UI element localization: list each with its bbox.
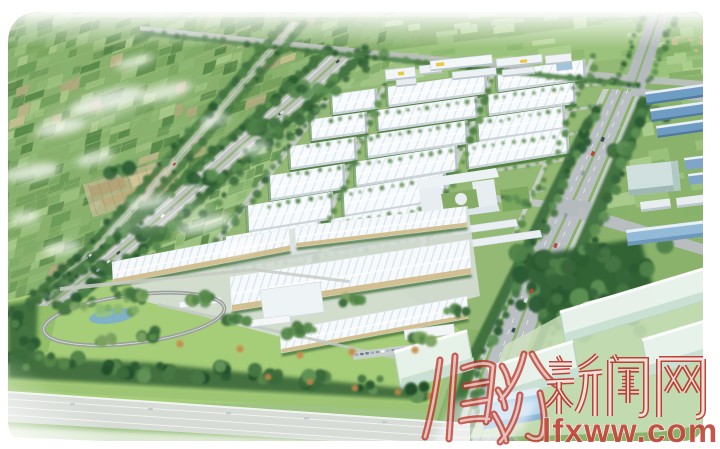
svg-text:lfxww.com: lfxww.com — [542, 412, 718, 449]
